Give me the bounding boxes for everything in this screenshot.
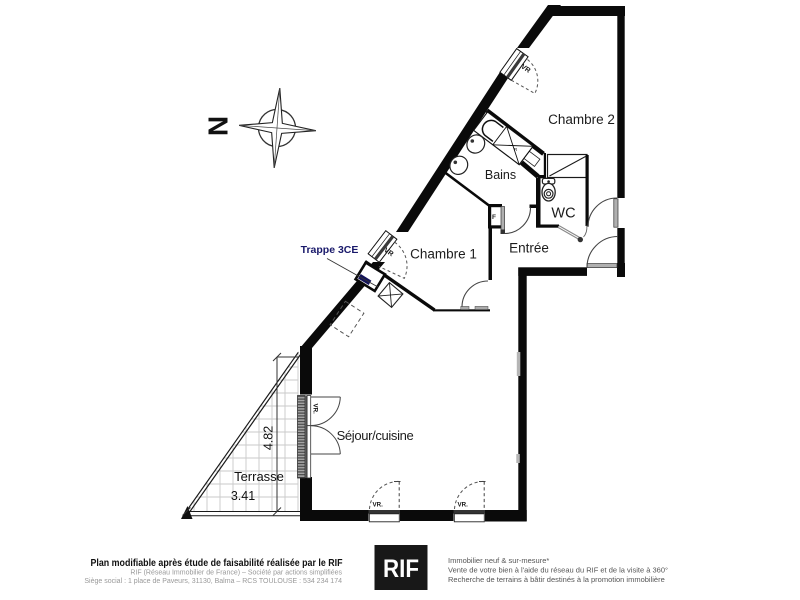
svg-text:Terrasse: Terrasse <box>234 469 284 484</box>
svg-text:VR.: VR. <box>373 502 384 509</box>
svg-text:Chambre 1: Chambre 1 <box>410 247 477 262</box>
svg-text:Bains: Bains <box>485 168 516 182</box>
svg-text:4.82: 4.82 <box>262 426 276 450</box>
svg-text:Siège social : 1 place de Pave: Siège social : 1 place de Paveurs, 31130… <box>84 578 342 585</box>
svg-text:Trappe 3CE: Trappe 3CE <box>301 244 359 256</box>
svg-text:Recherche de terrains à bâtir: Recherche de terrains à bâtir destinés à… <box>448 575 665 584</box>
svg-text:RIF (Réseau Immobilier de Fran: RIF (Réseau Immobilier de France) – Soci… <box>130 570 342 577</box>
svg-text:WC: WC <box>551 206 575 222</box>
svg-text:Entrée: Entrée <box>509 241 549 256</box>
svg-text:F: F <box>492 214 496 221</box>
svg-text:N: N <box>203 116 234 136</box>
svg-text:Plan modifiable après étude de: Plan modifiable après étude de faisabili… <box>91 558 343 569</box>
svg-text:Chambre 2: Chambre 2 <box>548 112 615 127</box>
svg-text:Séjour/cuisine: Séjour/cuisine <box>337 428 414 443</box>
svg-text:Immobilier neuf & sur-mesure*: Immobilier neuf & sur-mesure* <box>448 556 549 565</box>
svg-text:VR.: VR. <box>312 404 319 415</box>
svg-text:RIF: RIF <box>383 555 419 583</box>
svg-text:VR: VR <box>519 63 531 74</box>
svg-text:Vente de votre bien à l'aide d: Vente de votre bien à l'aide du réseau d… <box>448 566 668 575</box>
svg-text:3.41: 3.41 <box>231 489 255 503</box>
svg-text:VR.: VR. <box>458 502 469 509</box>
